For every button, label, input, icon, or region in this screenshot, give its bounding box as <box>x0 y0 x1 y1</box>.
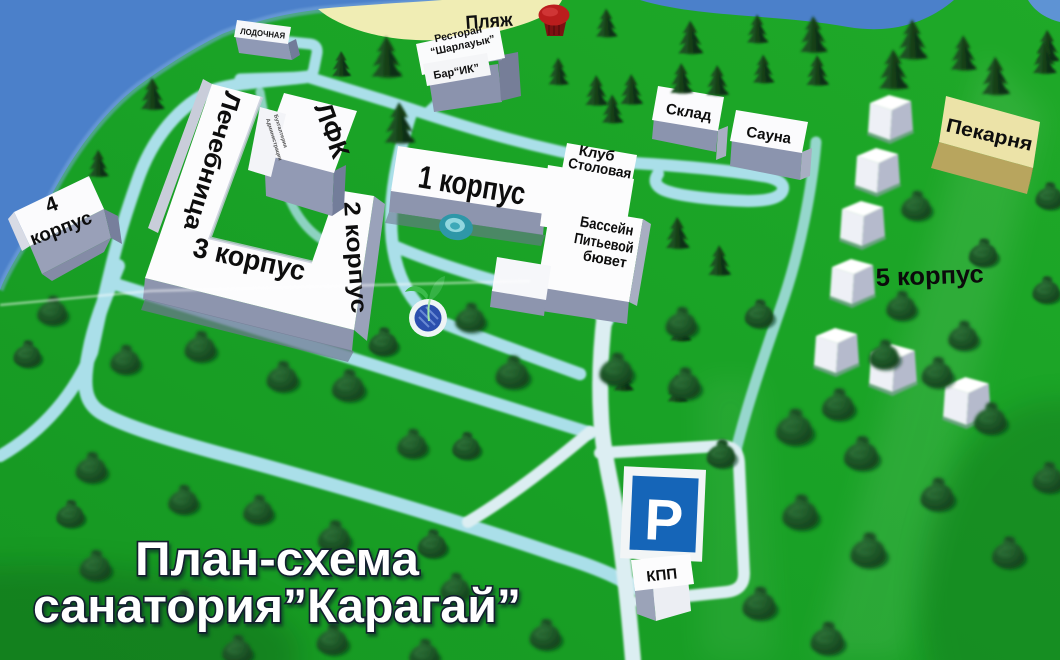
svg-text:5 корпус: 5 корпус <box>875 260 984 292</box>
svg-text:санатория”Карагай”: санатория”Карагай” <box>33 579 521 632</box>
svg-text:Пляж: Пляж <box>465 10 514 34</box>
svg-text:P: P <box>643 487 684 554</box>
svg-text:План-схема: План-схема <box>135 532 420 585</box>
svg-text:КПП: КПП <box>646 565 678 585</box>
